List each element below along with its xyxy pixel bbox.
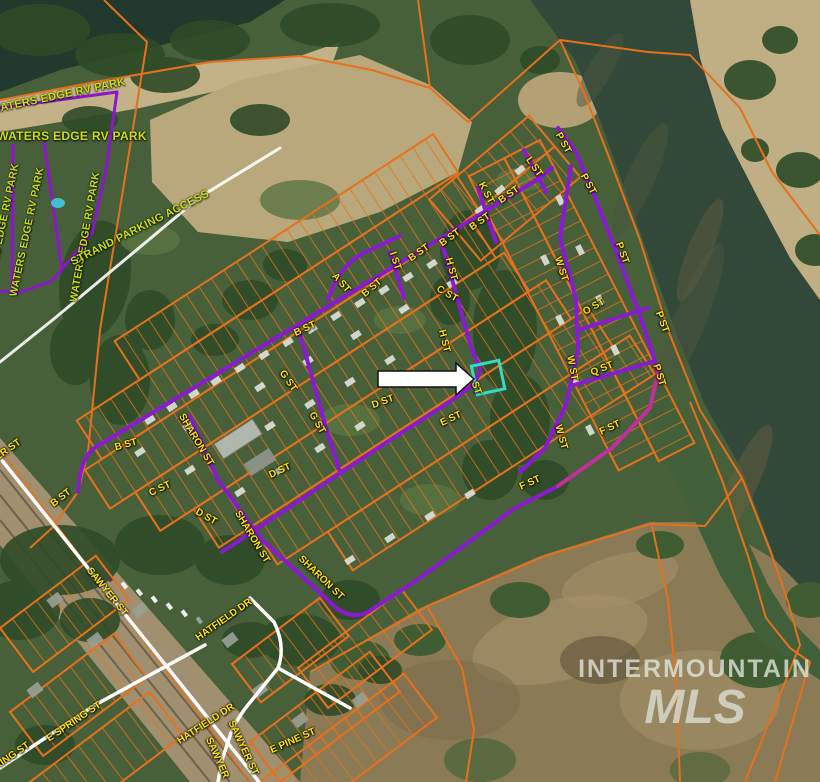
mls-parcel-map: P STL STK STB STP STB STB STB STI STH ST… (0, 0, 820, 782)
map-canvas (0, 0, 820, 782)
rv-park-pool (51, 198, 65, 208)
